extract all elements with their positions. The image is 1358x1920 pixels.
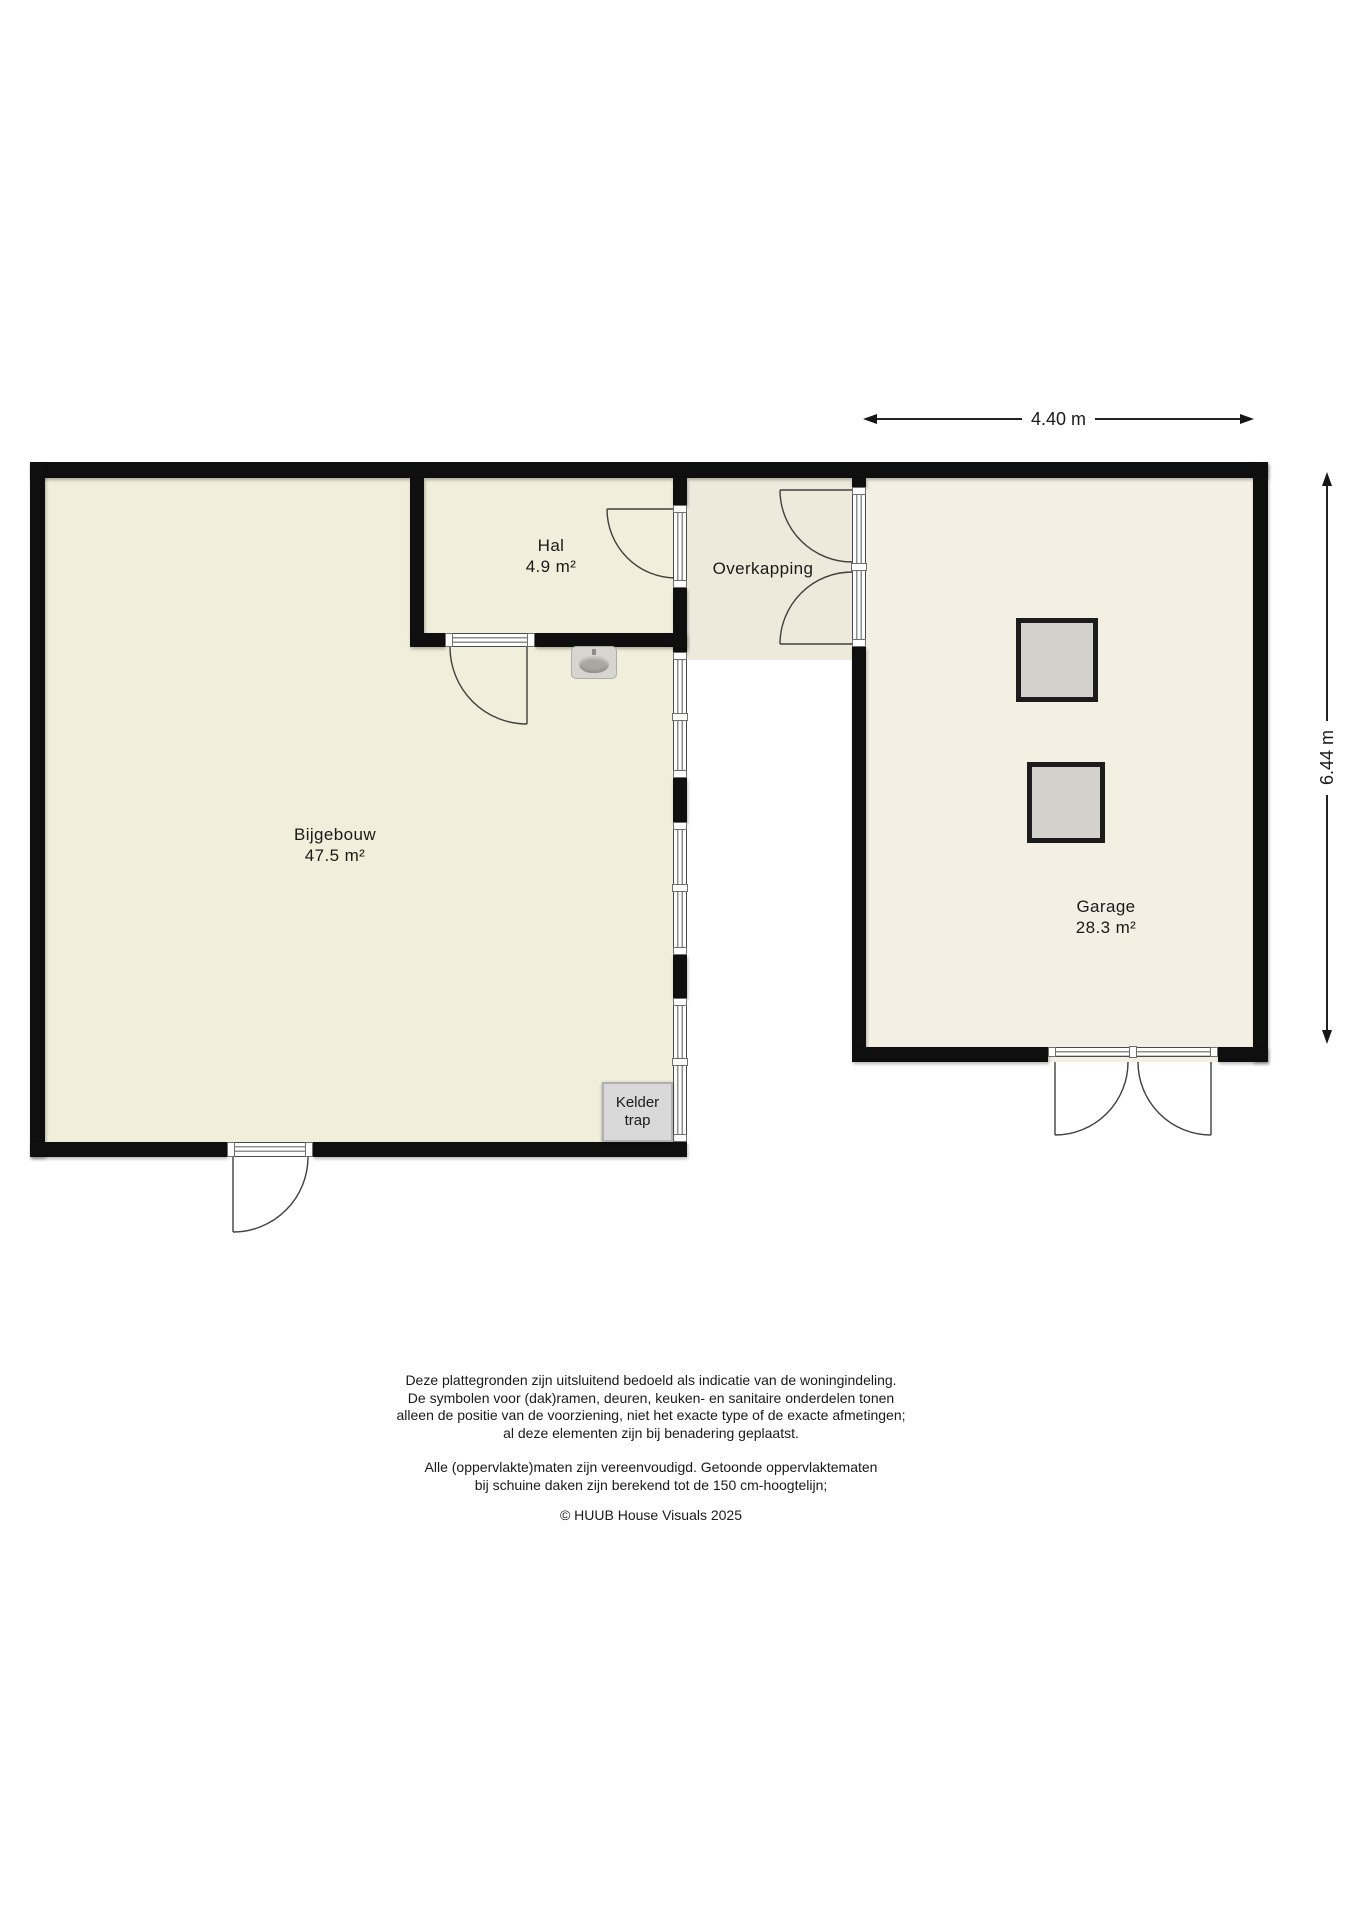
disclaimer-line: al deze elementen zijn bij benadering ge… [0, 1425, 1302, 1443]
dimension-width-label: 4.40 m [1022, 409, 1095, 430]
bijgebouw-door-window [227, 1142, 313, 1157]
arrowhead-down-icon [1322, 1030, 1332, 1044]
disclaimer-line: De symbolen voor (dak)ramen, deuren, keu… [0, 1390, 1302, 1408]
arrowhead-up-icon [1322, 472, 1332, 486]
arrowhead-right-icon [1240, 414, 1254, 424]
dimension-garage-width: 4.40 m [863, 408, 1254, 430]
copyright-text: © HUUB House Visuals 2025 [0, 1507, 1302, 1525]
window-divider [1129, 1046, 1137, 1058]
overkapping-door-bottom-arc [780, 572, 852, 644]
dimension-garage-height: 6.44 m [1316, 472, 1338, 1044]
disclaimer-line: Alle (oppervlakte)maten zijn vereenvoudi… [0, 1459, 1302, 1477]
footer-disclaimer: Deze plattegronden zijn uitsluitend bedo… [0, 1372, 1302, 1525]
bijgebouw-area: 47.5 m² [235, 845, 435, 866]
sink-basin [579, 656, 609, 673]
bijgebouw-name: Bijgebouw [235, 824, 435, 845]
kelder-trap-box: Kelder trap [602, 1082, 673, 1142]
window-divider [672, 1058, 688, 1066]
kelder-trap-label-line2: trap [625, 1112, 651, 1130]
window-divider [672, 713, 688, 721]
bijgebouw-label: Bijgebouw 47.5 m² [235, 824, 435, 866]
overkapping-name: Overkapping [663, 558, 863, 579]
hal-label: Hal 4.9 m² [471, 535, 631, 577]
disclaimer-line: Deze plattegronden zijn uitsluitend bedo… [0, 1372, 1302, 1390]
door-swing-arcs [0, 0, 1358, 1920]
disclaimer-line: bij schuine daken zijn berekend tot de 1… [0, 1477, 1302, 1495]
window-divider [672, 884, 688, 892]
hal-window-door-arc [450, 647, 527, 724]
garage-area: 28.3 m² [1006, 917, 1206, 938]
sink-icon [571, 646, 617, 679]
floorplan-page: Kelder trap Hal 4.9 m² Overkapping Bijge… [0, 0, 1358, 1920]
garage-name: Garage [1006, 896, 1206, 917]
dimension-line [1326, 795, 1328, 1030]
dimension-line [877, 418, 1022, 420]
kelder-trap-label-line1: Kelder [616, 1094, 659, 1112]
bijgebouw-exterior-door-arc [233, 1157, 308, 1232]
arrowhead-left-icon [863, 414, 877, 424]
garage-roof-window-1 [1016, 618, 1098, 702]
hal-area: 4.9 m² [471, 556, 631, 577]
garage-label: Garage 28.3 m² [1006, 896, 1206, 938]
dimension-line [1326, 486, 1328, 721]
dimension-line [1095, 418, 1240, 420]
sink-tap [592, 649, 596, 655]
overkapping-label: Overkapping [663, 558, 863, 579]
disclaimer-line: alleen de positie van de voorziening, ni… [0, 1407, 1302, 1425]
hal-window [445, 633, 535, 647]
garage-door-right-arc [1138, 1062, 1211, 1135]
dimension-height-label: 6.44 m [1317, 721, 1338, 794]
garage-roof-window-2 [1027, 762, 1105, 843]
right-wall-window-3 [673, 998, 687, 1142]
overkapping-door-top-arc [780, 490, 852, 562]
hal-name: Hal [471, 535, 631, 556]
garage-door-left-arc [1055, 1062, 1128, 1135]
